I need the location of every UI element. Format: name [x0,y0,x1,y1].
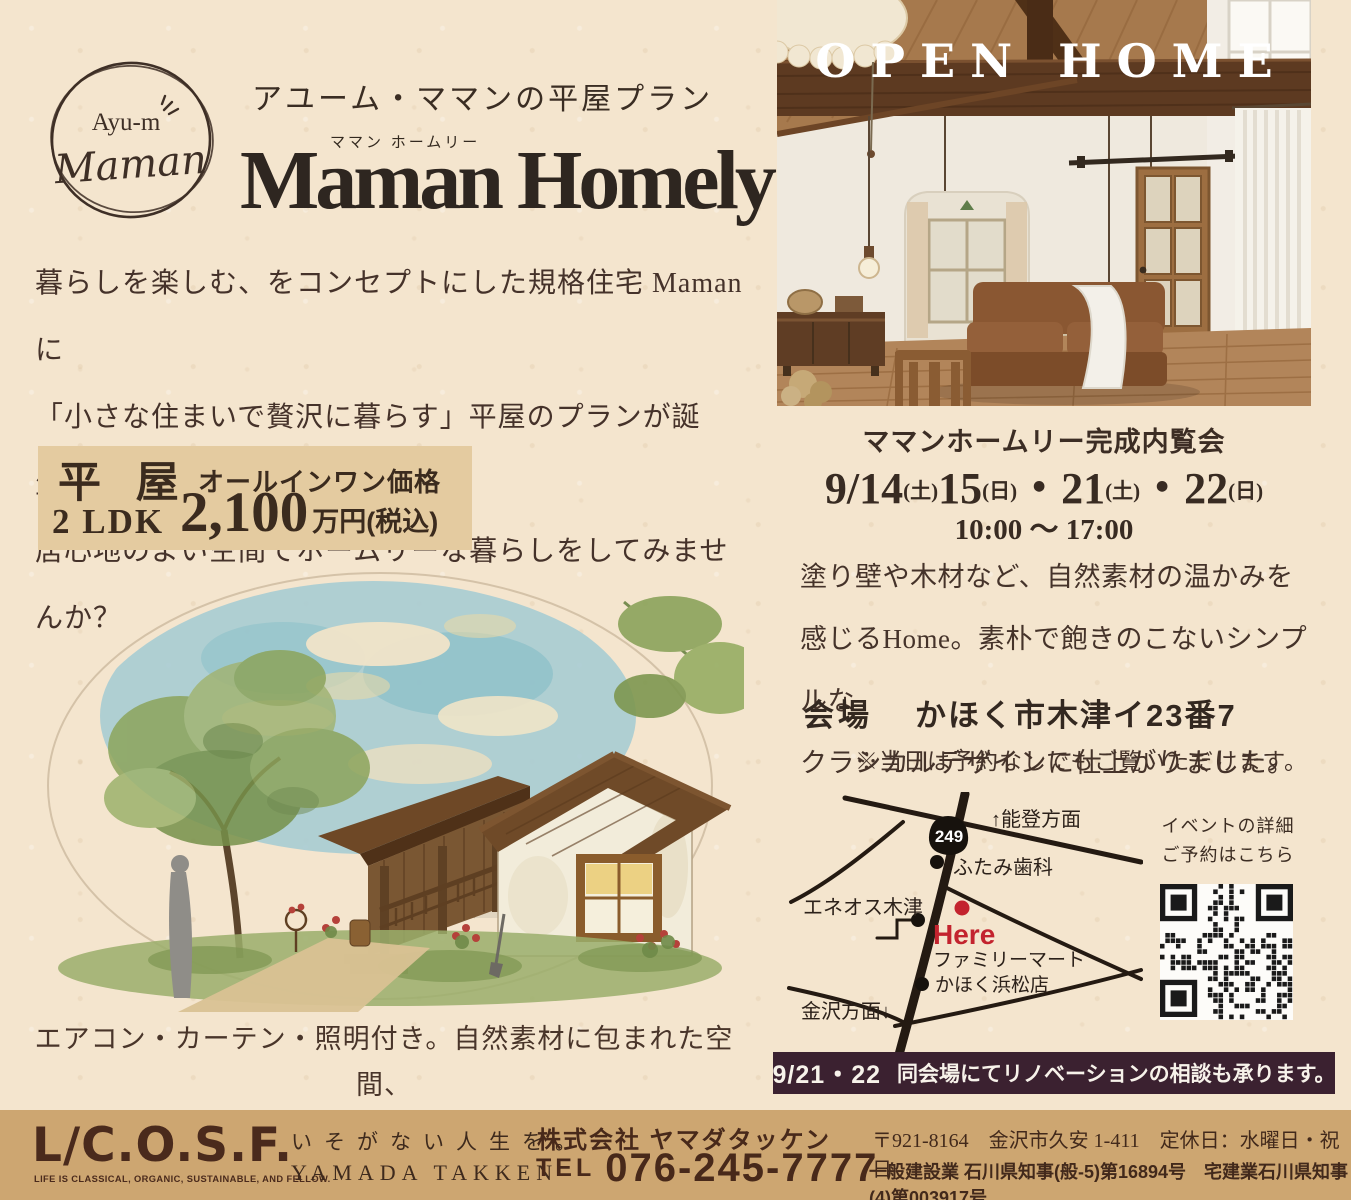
product-name: Maman Homely [240,132,773,229]
open-home-banner: OPEN HOME [777,34,1311,88]
plan-label: 2 LDK [52,502,164,542]
qr-caption: イベントの詳細 ご予約はこちら [1148,812,1308,870]
map-south-label: 金沢方面↓ [801,1000,891,1023]
renovation-bar-date: 9/21・22 [773,1055,881,1091]
route-249-shield: 249 [929,816,968,855]
interior-photo: OPEN HOME [777,0,1311,406]
intro-line-1: 暮らしを楽しむ、をコンセプトにした規格住宅 Maman に [35,250,755,384]
caption-line-1: エアコン・カーテン・照明付き。自然素材に包まれた空間、 [12,1016,756,1108]
tel-number: 076-245-7777 [605,1146,878,1191]
renovation-bar: 9/21・22 同会場にてリノベーションの相談も承ります。 [773,1052,1335,1094]
venue-note: ※当日は予約なしでもご覧いただけます。 [855,742,1308,776]
event-desc-line-1: 塗り壁や木材など、自然素材の温かみを [800,546,1312,608]
price-unit: 万円(税込) [312,500,438,539]
route-249-label: 249 [935,827,963,846]
map-here-label: Here [933,919,995,950]
renovation-bar-text: 同会場にてリノベーションの相談も承ります。 [897,1058,1335,1088]
house-type-label: 平 屋 [58,448,191,510]
date-day: (土) [903,479,938,503]
company-license: 一般建設業 石川県知事(般-5)第16894号 宅建業石川県知事(4)第0039… [869,1158,1351,1200]
price-value: 2,100 [180,480,308,545]
logo-maman-text: Maman [52,137,208,194]
house-illustration [28,566,744,1012]
event-time: 10:00 〜 17:00 [777,506,1311,548]
map-dental-label: ふたみ歯科 [953,856,1053,879]
person-silhouette [169,855,192,998]
venue-label: 会場 [803,690,873,735]
map-north-label: ↑能登方面 [991,808,1081,831]
qr-caption-line-2: ご予約はこちら [1148,841,1308,870]
date-day: (土) [1105,479,1140,503]
date-day: (日) [1228,479,1263,503]
tel-label: TEL [536,1154,595,1183]
qr-caption-line-1: イベントの詳細 [1148,812,1308,841]
telephone-row: TEL 076-245-7777 [536,1146,878,1191]
map-eneos-label: エネオス木津 [803,896,923,919]
price-value-row: 2,100 万円(税込) [180,480,438,545]
logo-ayum-text: Ayu-m [92,109,161,136]
access-map: 249 ↑能登方面 ふたみ歯科 エネオス木津 Here ファミリーマート かほく… [785,792,1143,1070]
ayum-maman-logo: Ayu-m Maman [42,52,220,228]
lcosf-logo: L/C.O.S.F. [32,1118,293,1173]
logo-sparkle-icon [162,96,178,114]
venue-line: 会場 かほく市木津イ23番7 [803,690,1237,735]
lcosf-tagline: LIFE IS CLASSICAL, ORGANIC, SUSTAINABLE,… [34,1174,331,1184]
map-famima-label-1: ファミリーマート [933,950,1085,971]
venue-address: かほく市木津イ23番7 [915,690,1237,735]
map-famima-label-2: かほく浜松店 [935,974,1049,996]
company-slogan-en: YAMADA TAKKEN [291,1160,558,1186]
qr-code [1160,884,1293,1020]
series-title: アユーム・ママンの平屋プラン [252,74,713,118]
price-box: 平 屋 オールインワン価格 2 LDK 2,100 万円(税込) [38,446,472,550]
footer-band: L/C.O.S.F. LIFE IS CLASSICAL, ORGANIC, S… [0,1110,1351,1200]
flyer: Ayu-m Maman アユーム・ママンの平屋プラン ママン ホームリー Mam… [0,0,1351,1200]
corner-foliage [614,596,744,718]
date-day: (日) [982,479,1017,503]
